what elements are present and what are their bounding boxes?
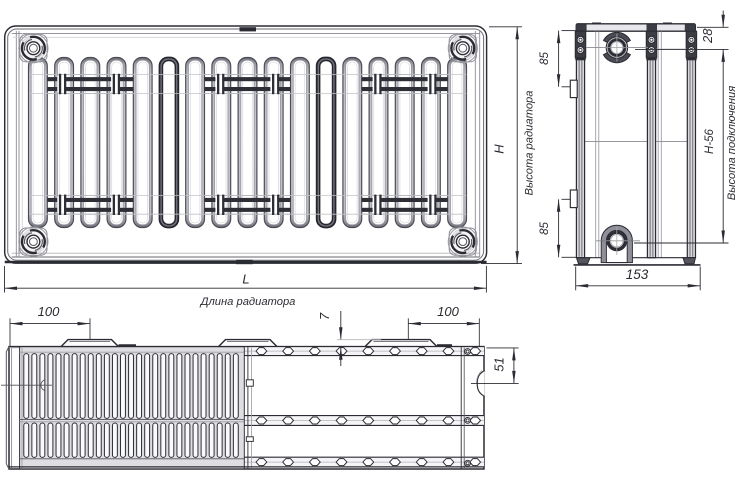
svg-text:153: 153	[626, 267, 649, 282]
svg-text:L: L	[242, 272, 249, 287]
svg-text:51: 51	[492, 357, 507, 371]
svg-text:28: 28	[700, 28, 715, 44]
svg-text:85: 85	[539, 222, 551, 235]
svg-text:100: 100	[38, 304, 60, 319]
svg-text:Высота подключения: Высота подключения	[726, 86, 738, 200]
svg-text:H-56: H-56	[704, 128, 716, 154]
svg-text:H: H	[492, 144, 507, 154]
svg-text:7: 7	[317, 312, 332, 320]
svg-text:Высота радиатора: Высота радиатора	[524, 91, 536, 196]
svg-text:Длина радиатора: Длина радиатора	[199, 296, 296, 308]
svg-text:100: 100	[437, 304, 459, 319]
svg-text:85: 85	[539, 52, 551, 65]
